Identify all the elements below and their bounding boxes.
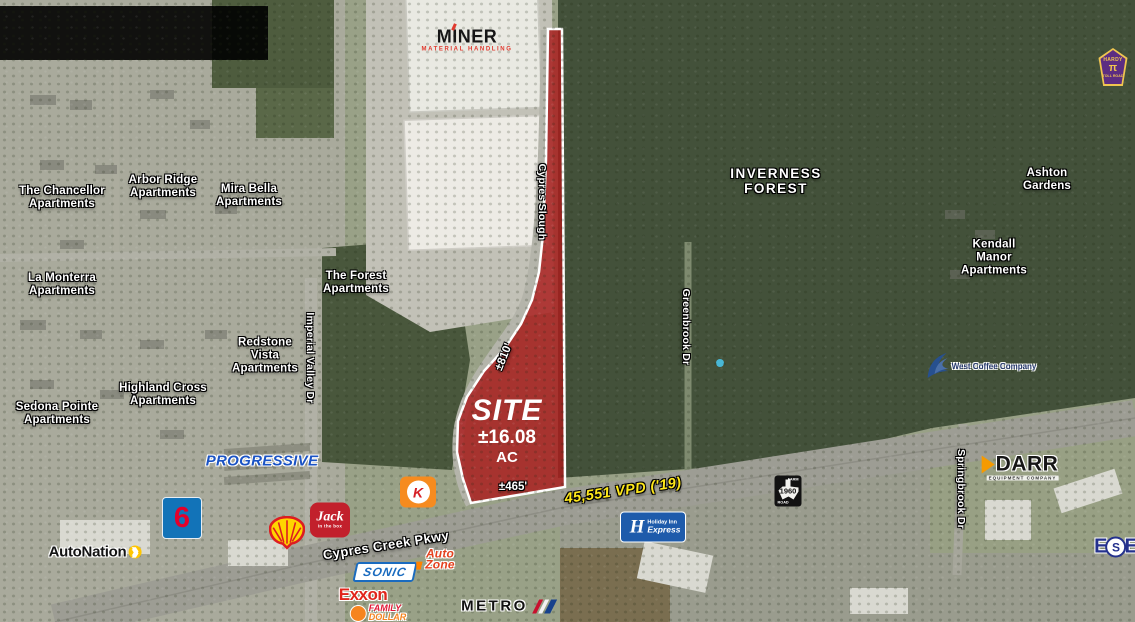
sonic-logo: SONIC [352, 562, 417, 582]
jack-subtext: in the box [318, 525, 342, 530]
exxon-label: Exxon [339, 585, 388, 605]
west-coffee-company-label: West Coffee Company [952, 362, 1037, 371]
holiday-inn-line2: Express [647, 526, 680, 535]
aerial-site-map: The Chancellor ApartmentsArbor Ridge Apa… [0, 0, 1135, 622]
miner-tagline: MATERIAL HANDLING [422, 47, 513, 53]
darr-logo: DARR EQUIPMENT COMPANY [982, 454, 1059, 475]
site-acreage: ±16.08 [472, 426, 543, 450]
eagle-wing-icon [926, 352, 950, 380]
autozone-line2: Zone [425, 560, 454, 571]
metro-logo: METRO [461, 598, 557, 615]
progressive-label: PROGRESSIVE [206, 453, 319, 470]
autozone-logo: Auto Zone [425, 549, 454, 572]
darr-arrow-icon [982, 455, 995, 473]
jack-script: Jack [316, 511, 343, 525]
map-annotations-layer: SITE ±16.08 AC ±810' ±465' 45,551 VPD ('… [0, 0, 1135, 622]
autonation-logo: AutoNation ❯ [49, 544, 142, 561]
jack-in-the-box-logo: Jack in the box [310, 503, 350, 538]
site-label-block: SITE ±16.08 AC [472, 396, 543, 466]
holiday-inn-express-logo: H Holiday Inn Express [620, 512, 686, 543]
sonic-label: SONIC [362, 565, 408, 579]
site-label: SITE [472, 396, 543, 426]
darr-name: DARR [996, 454, 1059, 475]
site-acreage-unit: AC [472, 450, 543, 467]
site-frontage-dimension: ±465' [499, 481, 527, 493]
miner-material-handling-logo: MINER MATERIAL HANDLING [422, 28, 513, 53]
family-dollar-logo: FAMILY DOLLAR [350, 604, 407, 622]
farm-road-number: 1960 [775, 476, 802, 507]
ese-logo: E S E [1094, 536, 1135, 559]
ese-circle-s-icon: S [1106, 537, 1127, 558]
hardy-toll-road-shield-icon: HARDY π TOLL ROAD [1099, 48, 1128, 86]
motel-6-digit: 6 [174, 502, 190, 535]
motel-6-logo: 6 [162, 497, 202, 539]
shell-pecten-icon [269, 516, 305, 550]
family-dollar-coin-icon [350, 605, 367, 622]
site-depth-dimension: ±810' [493, 342, 515, 373]
metro-stripes-icon [531, 599, 557, 613]
holiday-inn-h-icon: H [630, 516, 645, 538]
metro-label: METRO [461, 598, 528, 615]
circle-k-letter: K [407, 481, 430, 504]
traffic-count-label: 45,551 VPD ('19) [564, 475, 683, 507]
west-coffee-company-logo: West Coffee Company [926, 352, 1037, 380]
miner-red-accent-icon: I [452, 27, 458, 47]
circle-k-logo: K [400, 477, 436, 508]
miner-name: MINER [437, 28, 498, 46]
hardy-bottom-text: TOLL ROAD [1103, 74, 1124, 78]
family-dollar-line2: DOLLAR [369, 613, 407, 622]
autonation-arrow-icon: ❯ [128, 546, 141, 559]
progressive-logo: PROGRESSIVE [206, 453, 319, 470]
darr-subtext: EQUIPMENT COMPANY [987, 476, 1059, 481]
autonation-label: AutoNation [49, 544, 127, 561]
hardy-bridge-glyph: π [1109, 63, 1117, 74]
texas-farm-road-1960-sign-icon: FARM 1960 ROAD [775, 476, 802, 507]
exxon-logo: Exxon [339, 585, 388, 605]
